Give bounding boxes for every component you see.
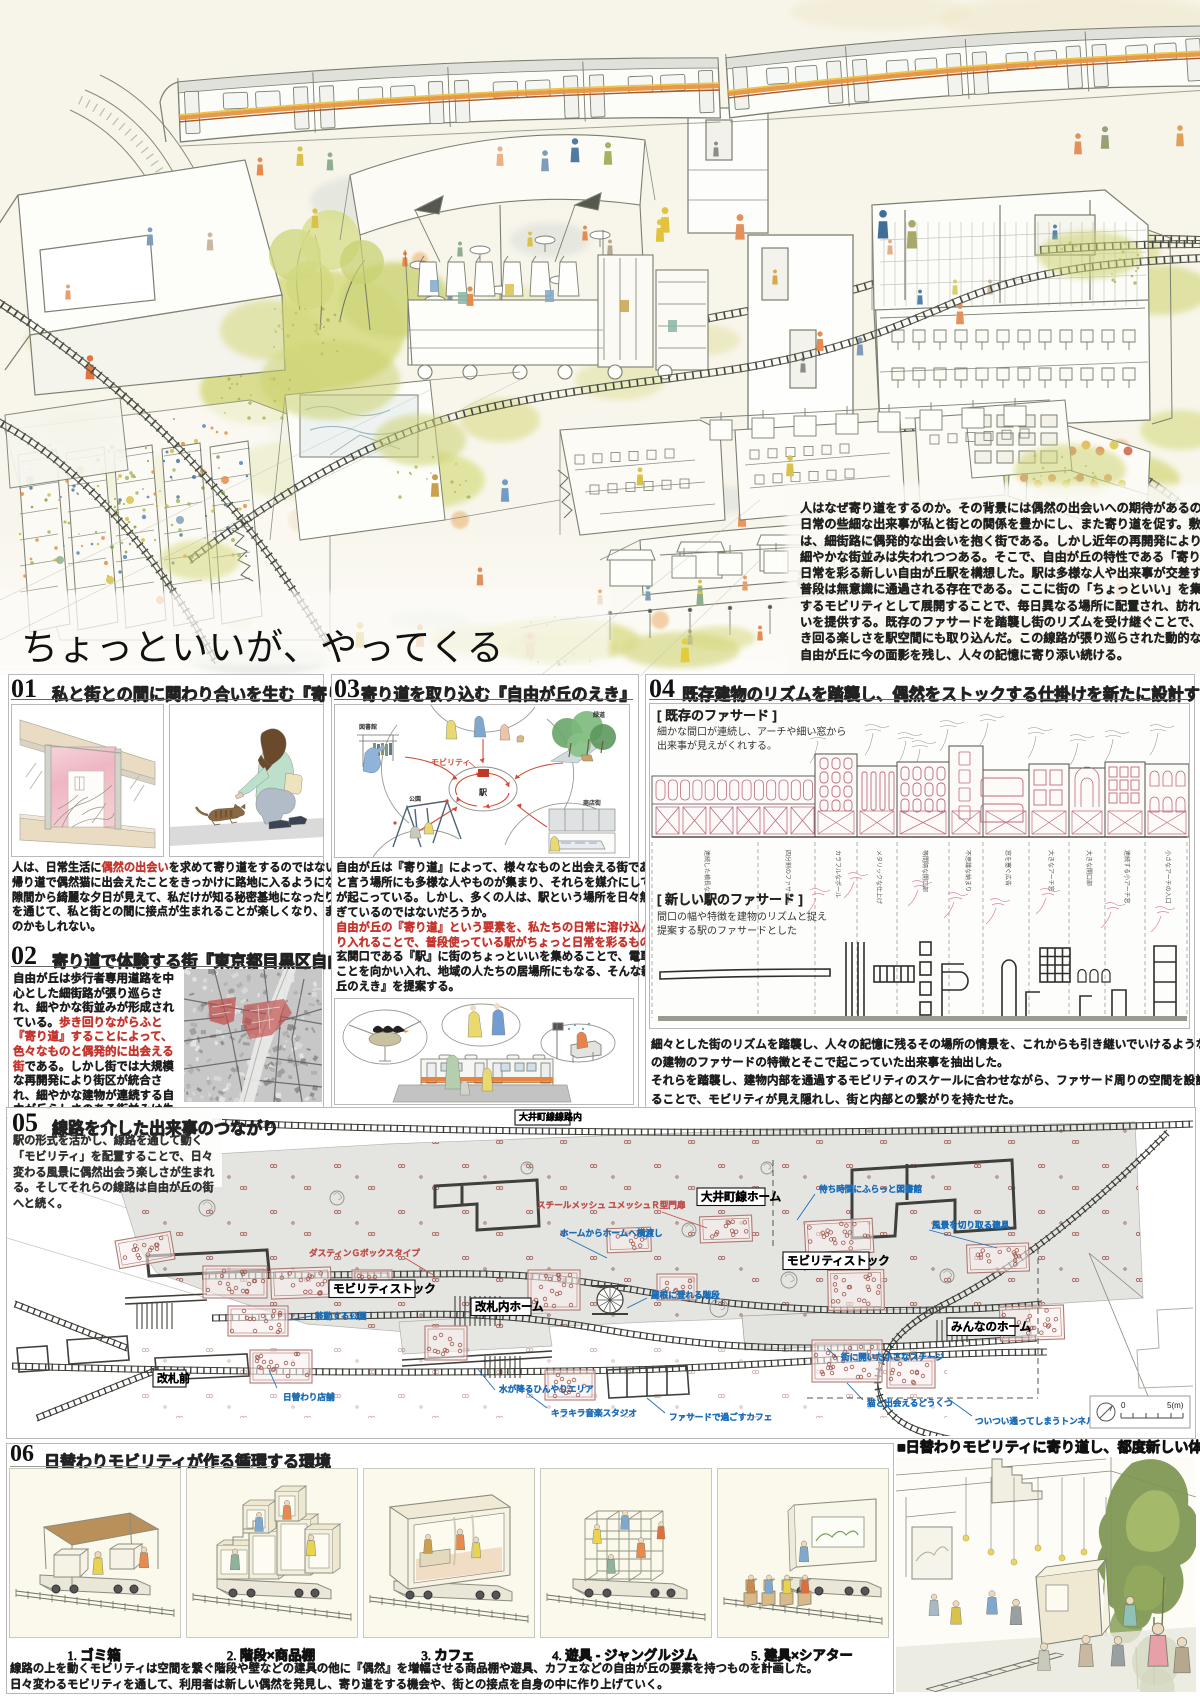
svg-text:スチールメッシュ ユメッシュＲ型門扉: スチールメッシュ ユメッシュＲ型門扉 [537,1199,686,1210]
svg-text:屋根に登れる階段: 屋根に登れる階段 [651,1289,720,1300]
svg-text:間口の幅や特徴を建物のリズムと捉え: 間口の幅や特徴を建物のリズムと捉え [657,910,827,923]
svg-text:改札内ホーム: 改札内ホーム [475,1300,544,1314]
svg-text:風景を切り取る建具: 風景を切り取る建具 [932,1219,1010,1230]
svg-text:商店街: 商店街 [583,799,601,807]
svg-text:モビリティ: モビリティ [431,757,471,767]
svg-text:ホームからホームへ橫渡し: ホームからホームへ橫渡し [560,1227,663,1238]
svg-text:図書館: 図書館 [359,723,377,731]
svg-text:出来事が見えがくれする。: 出来事が見えがくれする。 [657,739,777,752]
svg-text:カラフルなポール: カラフルなポール [834,850,842,898]
svg-text:公園: 公園 [409,795,421,803]
svg-text:大きなアーチ窓: 大きなアーチ窓 [1047,850,1055,892]
svg-text:0: 0 [1121,1401,1126,1410]
svg-text:みんなのホーム: みんなのホーム [951,1321,1032,1334]
svg-text:モビリティストック: モビリティストック [333,1282,436,1296]
svg-text:窓を塞ぐ広告: 窓を塞ぐ広告 [1004,850,1012,886]
svg-text:街に開いた小さなステージ: 街に開いた小さなステージ [840,1351,944,1362]
svg-text:ついつい通ってしまうトンネル: ついつい通ってしまうトンネル [975,1416,1095,1426]
svg-text:小さなアーチの入口: 小さなアーチの入口 [1164,850,1172,904]
svg-text:連続した横長な窓: 連続した横長な窓 [703,850,711,898]
svg-text:ダスティンＧボックスタイプ: ダスティンＧボックスタイプ [309,1247,420,1258]
svg-text:猫と出会えるどうくつ: 猫と出会えるどうくつ [867,1397,953,1408]
svg-text:5(m): 5(m) [1167,1401,1184,1410]
svg-text:[ 新しい駅のファサード ]: [ 新しい駅のファサード ] [657,892,803,907]
svg-text:メタリックな仕上げ: メタリックな仕上げ [875,850,883,904]
svg-text:日替わり店舗: 日替わり店舗 [283,1391,335,1402]
svg-text:[ 既存のファサード ]: [ 既存のファサード ] [657,708,777,723]
svg-text:移動する公園: 移動する公園 [315,1310,367,1321]
svg-text:大きな開口部: 大きな開口部 [1085,850,1093,886]
svg-text:大井町線線路内: 大井町線線路内 [519,1111,582,1122]
svg-text:キラキラ音楽スタジオ: キラキラ音楽スタジオ [551,1407,637,1418]
svg-text:大井町線ホーム: 大井町線ホーム [701,1190,782,1204]
svg-text:連続する小アーチ窓: 連続する小アーチ窓 [1123,850,1131,904]
svg-text:細かな間口が連続し、アーチや細い窓から: 細かな間口が連続し、アーチや細い窓から [657,725,846,738]
svg-text:水が降るひんやりエリア: 水が降るひんやりエリア [499,1383,594,1394]
svg-text:駅: 駅 [479,788,488,797]
svg-text:待ち時間にふらっと図書館: 待ち時間にふらっと図書館 [819,1183,923,1194]
svg-text:ファサードで過ごすカフェ: ファサードで過ごすカフェ [669,1411,772,1422]
svg-text:モビリティストック: モビリティストック [787,1254,890,1268]
svg-text:緑道: 緑道 [593,711,605,719]
svg-text:不思議な納まり: 不思議な納まり [964,850,972,892]
svg-text:提案する駅のファサードとした: 提案する駅のファサードとした [657,924,797,937]
svg-text:改札前: 改札前 [157,1371,190,1385]
